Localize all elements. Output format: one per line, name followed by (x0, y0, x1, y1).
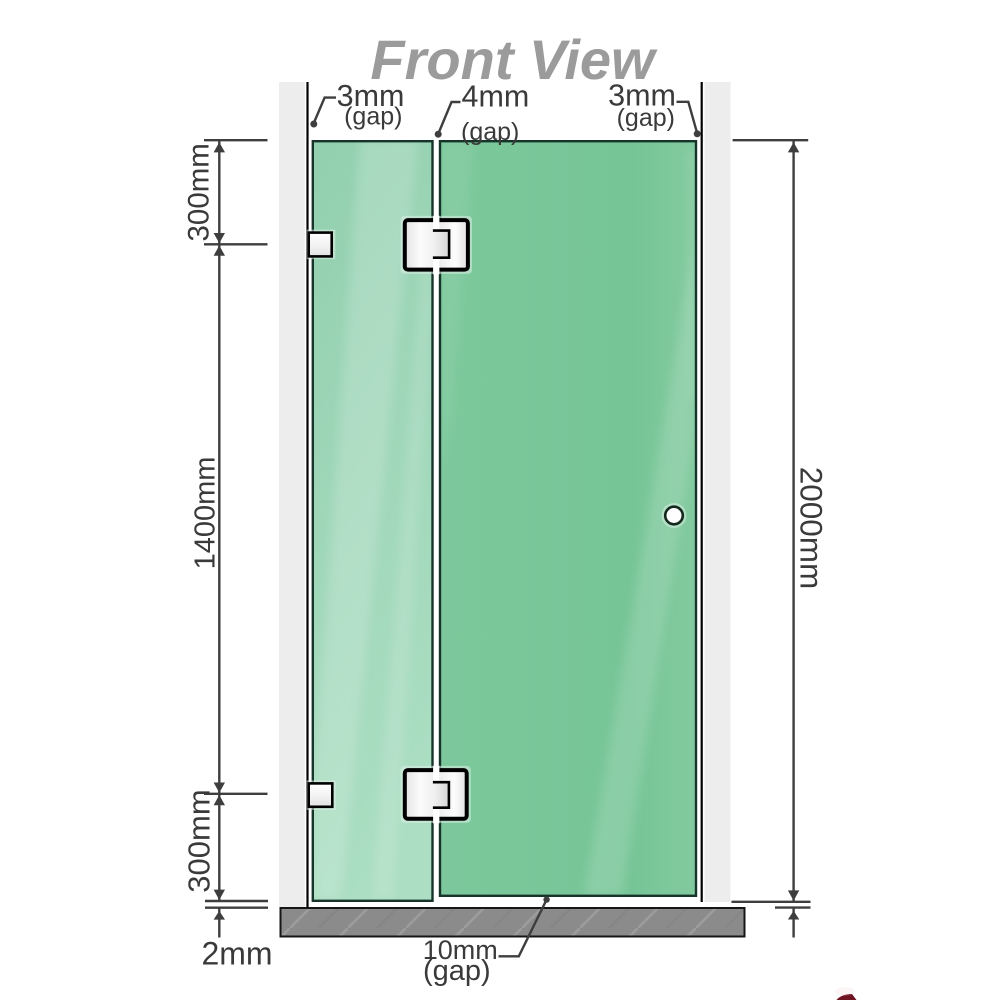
svg-text:(gap): (gap) (617, 104, 675, 132)
svg-text:(gap): (gap) (423, 955, 491, 987)
svg-text:300mm: 300mm (182, 789, 217, 892)
svg-text:2mm: 2mm (201, 936, 272, 972)
svg-text:1400mm: 1400mm (190, 457, 222, 570)
svg-text:2000mm: 2000mm (794, 467, 830, 590)
svg-text:(gap): (gap) (461, 118, 519, 146)
svg-text:(gap): (gap) (344, 103, 402, 131)
svg-text:300mm: 300mm (183, 143, 216, 241)
svg-text:4mm: 4mm (462, 79, 530, 113)
